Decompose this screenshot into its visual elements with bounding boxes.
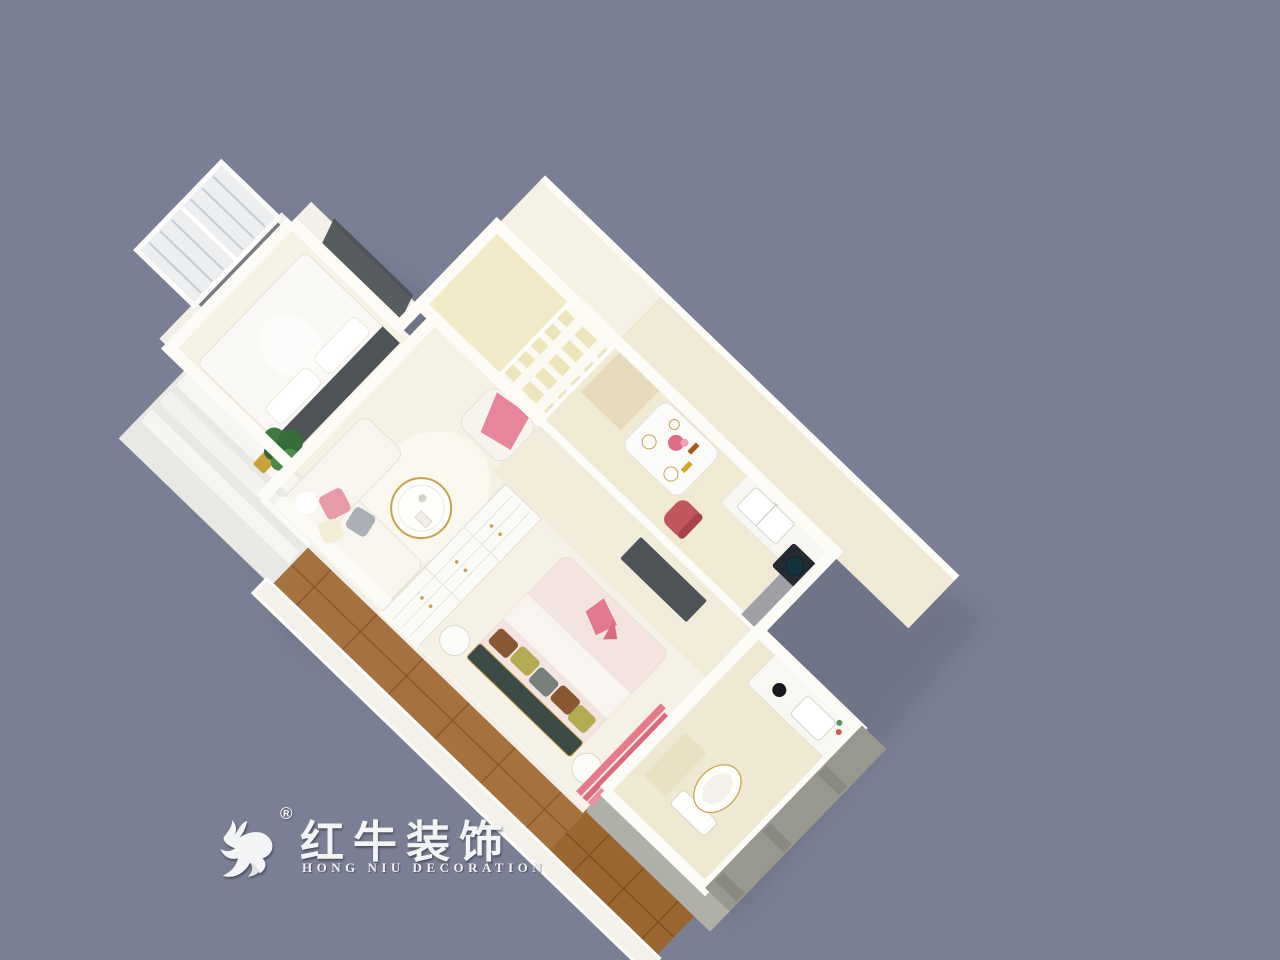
brand-logo: ® 红牛装饰 HONG NIU DECORATION xyxy=(204,798,504,898)
apartment-plan xyxy=(21,10,1006,960)
bull-logo-icon xyxy=(212,812,284,886)
apartment-3d-render xyxy=(0,0,1280,960)
render-canvas: ® 红牛装饰 HONG NIU DECORATION xyxy=(0,0,1280,960)
registered-trademark: ® xyxy=(280,804,293,824)
brand-name-english: HONG NIU DECORATION xyxy=(302,860,546,876)
